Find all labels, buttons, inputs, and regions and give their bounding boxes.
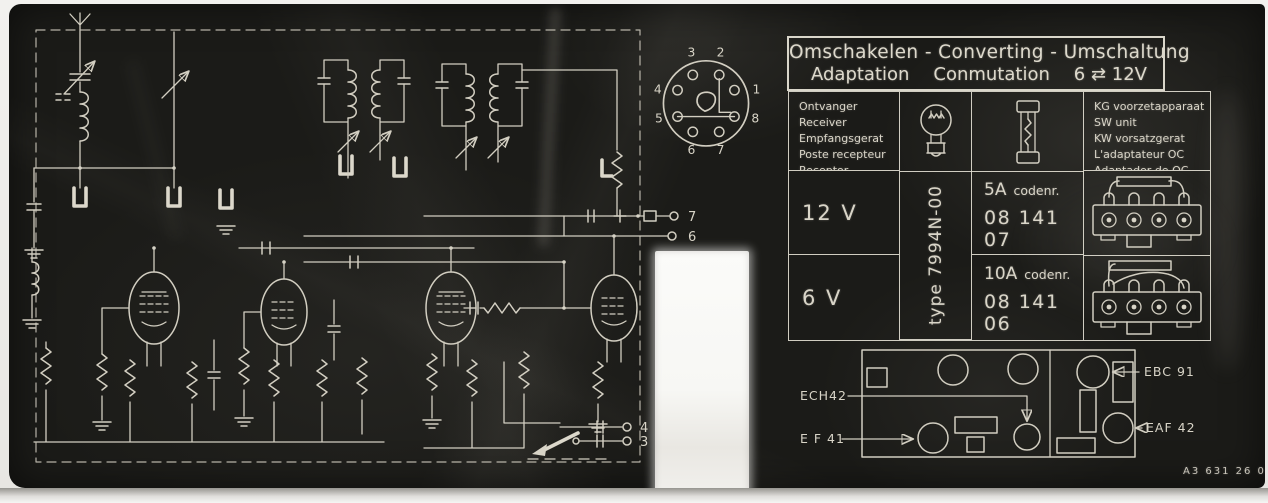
connector-6v-cell xyxy=(1084,255,1210,340)
svg-text:3: 3 xyxy=(688,45,696,59)
scanned-plate: 7 6 4 3 1 2 3 4 5 6 xyxy=(0,0,1268,503)
conversion-table: Ontvanger Receiver Empfangsgerat Poste r… xyxy=(788,91,1211,341)
tube-label-ech42: ECH42 xyxy=(800,388,847,403)
title-line-1: Omschakelen - Converting - Umschaltung xyxy=(789,42,1163,63)
vacuum-tube-4 xyxy=(564,234,637,362)
if-transformer-1 xyxy=(318,60,410,152)
pilot-lamp-icon xyxy=(913,101,959,163)
connector-6v-diagram xyxy=(1085,258,1209,338)
fuse-code-12v-cell: 5Acodenr. 08 141 07 xyxy=(972,171,1084,255)
vacuum-tube-3 xyxy=(426,248,476,366)
receiver-line-de: Empfangsgerat xyxy=(799,131,899,147)
terminal-3-label: 3 xyxy=(640,435,648,450)
bus-wires xyxy=(152,140,564,268)
pilot-lamp-cell xyxy=(900,92,972,172)
resistor-network xyxy=(34,300,607,448)
terminal-6-label: 6 xyxy=(688,230,696,245)
vacuum-tube-1 xyxy=(102,248,179,366)
receiver-line-fr: Poste recepteur xyxy=(799,147,899,163)
circuit-schematic-diagram: 7 6 4 3 xyxy=(4,10,704,490)
vacuum-tube-2 xyxy=(244,262,307,366)
terminal-4-label: 4 xyxy=(640,421,648,436)
codenr-word-6v: codenr. xyxy=(1024,267,1070,282)
sw-unit-line-de: KW vorsatzgerat xyxy=(1094,131,1210,147)
antenna-input-section xyxy=(25,13,188,258)
chassis-tube-layout-diagram: ECH42 E F 41 EBC 91 EAF 42 xyxy=(790,340,1220,475)
sw-unit-line-es: Adaptador de OC xyxy=(1094,163,1210,171)
fuse-rating-12v: 5A xyxy=(984,180,1006,200)
tube-label-eaf42: EAF 42 xyxy=(1146,420,1196,435)
svg-text:1: 1 xyxy=(752,82,760,96)
svg-text:8: 8 xyxy=(751,111,759,125)
fuse-code-6v-cell: 10Acodenr. 08 141 06 xyxy=(972,255,1084,340)
output-terminals-6-7: 7 6 xyxy=(304,210,696,245)
svg-text:2: 2 xyxy=(717,45,725,59)
receiver-line-es: Receptor xyxy=(799,163,899,171)
fuse-icon xyxy=(1013,99,1043,165)
voltage-12v-cell: 12 V xyxy=(789,171,900,255)
codenr-word-12v: codenr. xyxy=(1013,183,1059,198)
connector-12v-diagram xyxy=(1085,173,1209,253)
sw-unit-line-nl: KG voorzetapparaat xyxy=(1094,99,1210,115)
receiver-header-cell: Ontvanger Receiver Empfangsgerat Poste r… xyxy=(789,92,900,171)
sw-unit-line-fr: L'adaptateur OC xyxy=(1094,147,1210,163)
sw-unit-header-cell: KG voorzetapparaat SW unit KW vorsatzger… xyxy=(1084,92,1210,171)
terminal-7-label: 7 xyxy=(688,210,696,225)
svg-text:7: 7 xyxy=(717,143,725,157)
socket-pin-numbers: 1 2 3 4 5 6 7 8 xyxy=(654,45,760,156)
type-number-cell: type 7994N-00 xyxy=(900,171,972,340)
if-transformer-2 xyxy=(436,64,622,216)
tube-socket-pin-diagram: 1 2 3 4 5 6 7 8 xyxy=(650,44,762,156)
receiver-line-en: Receiver xyxy=(799,115,899,131)
power-switch-terminals-3-4: 4 3 xyxy=(528,421,648,459)
connector-12v-cell xyxy=(1084,171,1210,256)
conversion-title-box: Omschakelen - Converting - Umschaltung A… xyxy=(787,36,1165,91)
svg-text:5: 5 xyxy=(655,111,663,125)
sw-unit-line-en: SW unit xyxy=(1094,115,1210,131)
svg-text:4: 4 xyxy=(654,82,662,96)
voltage-6v-cell: 6 V xyxy=(789,255,900,340)
title-word-adaptation: Adaptation xyxy=(811,64,909,85)
type-number-label: type 7994N-00 xyxy=(926,185,946,325)
tube-label-ebc91: EBC 91 xyxy=(1144,364,1195,379)
tube-label-ef41: E F 41 xyxy=(800,431,845,446)
band-switch-contacts xyxy=(23,156,612,328)
title-line-2: Adaptation Conmutation 6 ⇄ 12V xyxy=(789,63,1163,85)
title-word-conmutation: Conmutation xyxy=(933,64,1050,85)
schematic-border xyxy=(36,30,640,462)
coupling-network xyxy=(464,260,566,423)
receiver-line-nl: Ontvanger xyxy=(799,99,899,115)
code-number-12v: 08 141 07 xyxy=(984,207,1083,251)
plate-part-number: A3 631 26 0 xyxy=(1183,466,1266,477)
svg-text:6: 6 xyxy=(688,143,696,157)
scan-bottom-edge xyxy=(0,488,1268,503)
fuse-rating-6v: 10A xyxy=(984,264,1017,284)
fuse-cell xyxy=(972,92,1084,172)
plate-cutout-notch xyxy=(655,251,749,503)
title-voltage: 6 ⇄ 12V xyxy=(1074,64,1147,85)
code-number-6v: 08 141 06 xyxy=(984,291,1083,335)
